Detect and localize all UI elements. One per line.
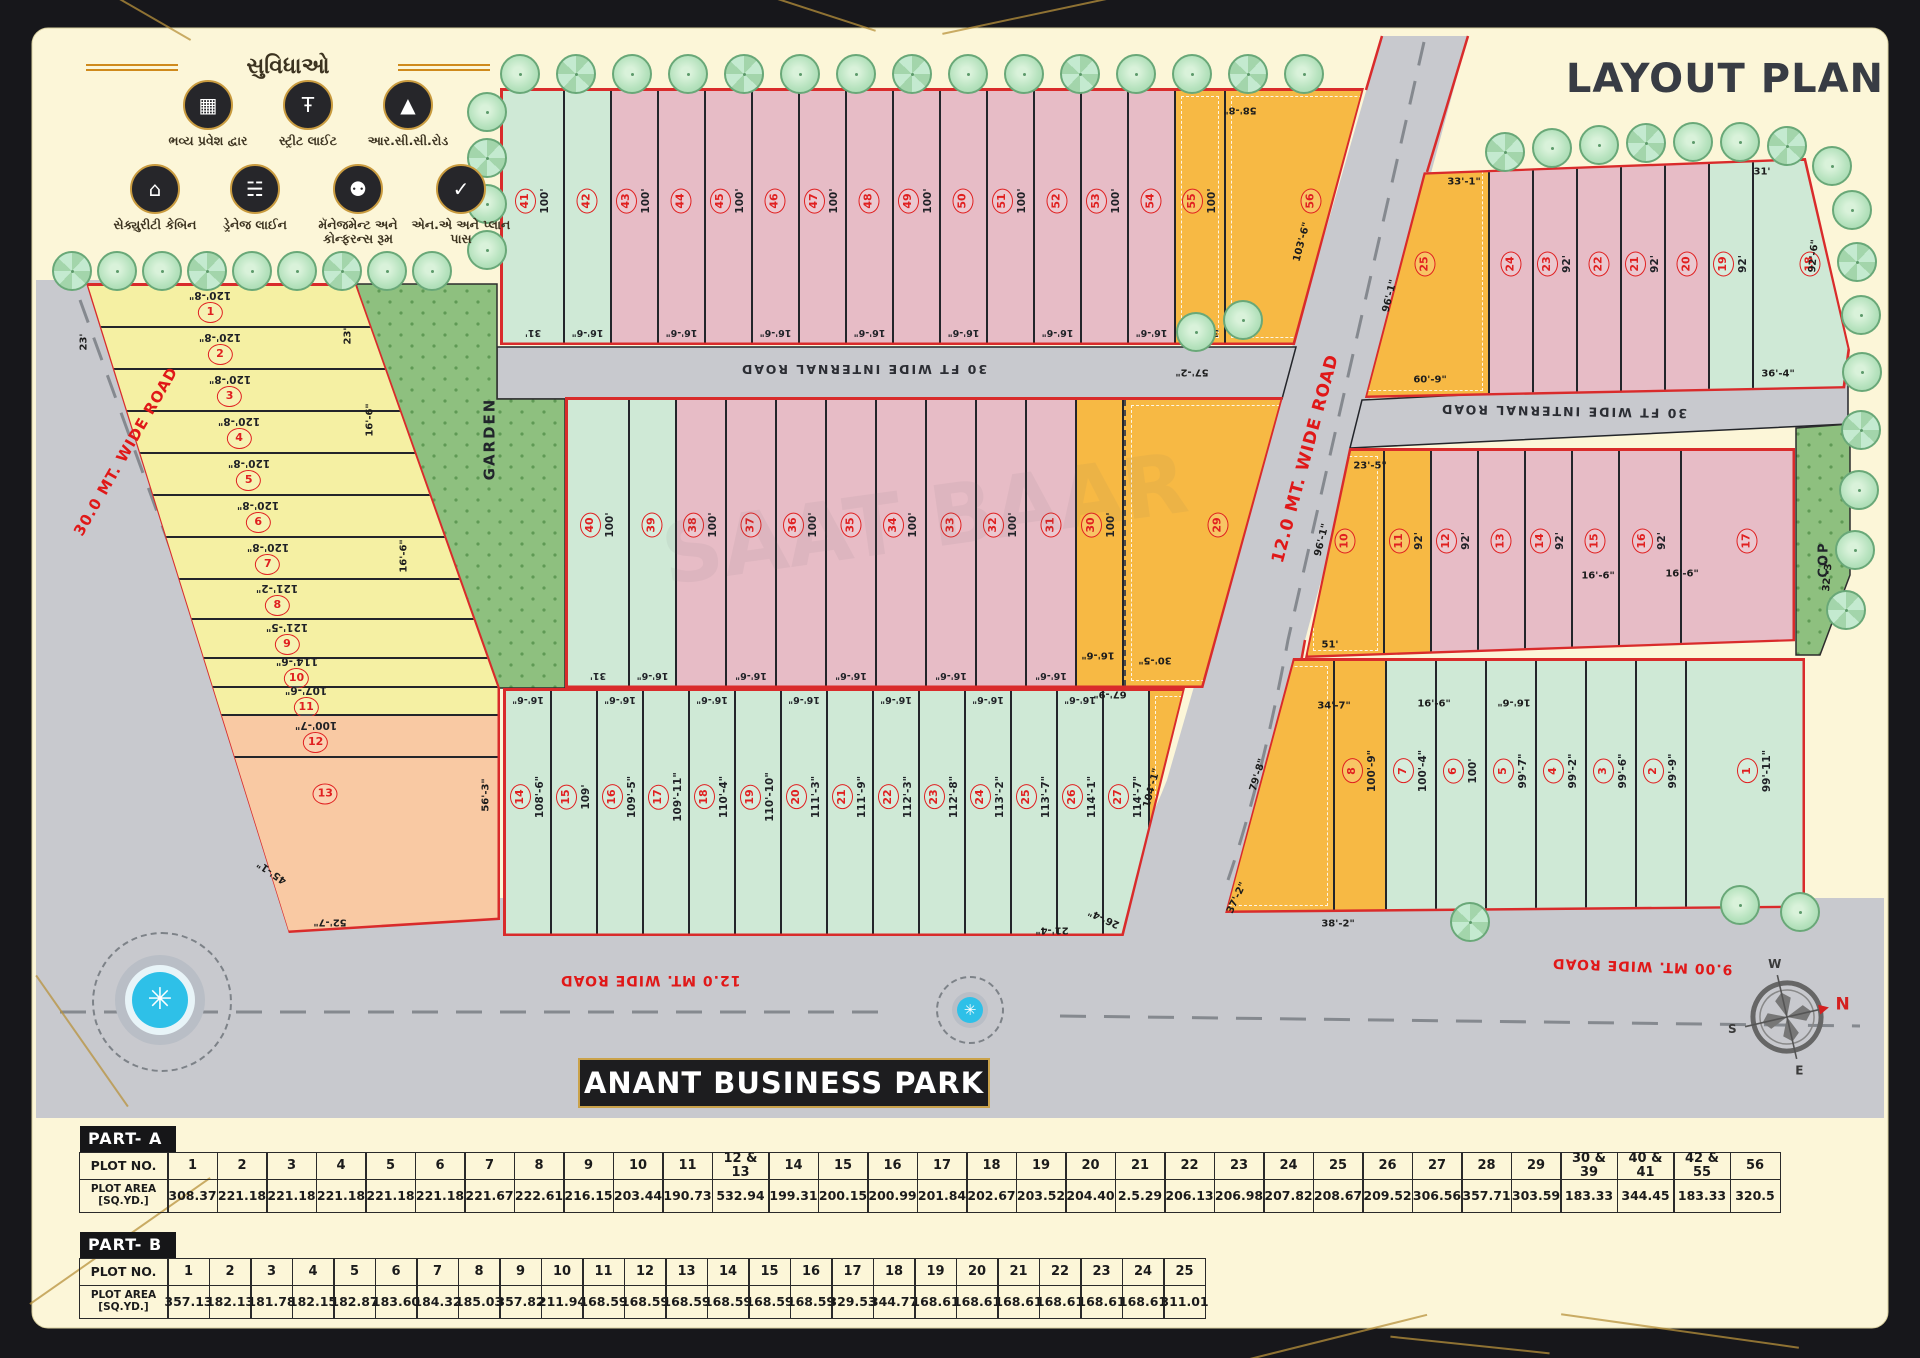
plot-number: 50 (953, 189, 974, 214)
plot-width-dim: 16'-6" (1035, 327, 1080, 338)
plot-top-51[interactable]: 51100' (988, 91, 1035, 343)
plot-top-48[interactable]: 4816'-6" (847, 91, 894, 343)
plot-top-45[interactable]: 45100' (706, 91, 753, 343)
plot-bmid-17[interactable]: 17109'-11" (644, 691, 690, 934)
compass-north: N (1835, 994, 1849, 1014)
plot-area-cell[interactable]: 199.31 (768, 1179, 819, 1213)
plot-number: 25 (1016, 785, 1037, 810)
plot-area-cell[interactable]: 168.59 (665, 1285, 708, 1319)
road-label-internal-top: 30 FT WIDE INTERNAL ROAD (740, 362, 987, 377)
plot-r1-21[interactable]: 2192' (1622, 161, 1666, 396)
plot-top-44[interactable]: 4416'-6" (659, 91, 706, 343)
plot-no-cell[interactable]: 9 (499, 1258, 542, 1286)
plot-no-cell[interactable]: 18 (873, 1258, 916, 1286)
plot-length-dim: 109' (580, 785, 592, 810)
plot-bmid-15[interactable]: 15109' (552, 691, 598, 934)
tree-icon (1485, 132, 1525, 172)
plot-no-cell[interactable]: 18 (966, 1152, 1017, 1180)
plot-no-cell[interactable]: 2 (209, 1258, 252, 1286)
plot-area-cell[interactable]: 185.03 (458, 1285, 501, 1319)
plot-number: 43 (616, 189, 637, 214)
plot-length-dim: 92' (1460, 532, 1472, 550)
plot-width-dim: 31' (503, 327, 563, 338)
plot-top-50[interactable]: 5016'-6" (941, 91, 988, 343)
plot-r2-12[interactable]: 1292' (1432, 451, 1479, 656)
plot-r1-20[interactable]: 20 (1666, 161, 1710, 396)
plot-length-dim: 108'-6" (534, 776, 546, 818)
plot-no-cell[interactable]: 6 (375, 1258, 418, 1286)
tree-icon (1284, 54, 1324, 94)
plot-no-cell[interactable]: 6 (415, 1152, 466, 1180)
plot-number: 23 (1537, 251, 1558, 276)
plot-number: 19 (740, 785, 761, 810)
plot-number: 21 (832, 785, 853, 810)
plot-area-cell[interactable]: 202.67 (966, 1179, 1017, 1213)
plot-bmid-25[interactable]: 25113'-7" (1012, 691, 1058, 934)
plot-no-cell[interactable]: 7 (416, 1258, 459, 1286)
plot-number: 38 (683, 513, 704, 538)
plot-no-cell[interactable]: 20 (956, 1258, 999, 1286)
plot-mid-30[interactable]: 30100' (1077, 400, 1124, 686)
plot-r1-22[interactable]: 22 (1578, 161, 1622, 396)
plot-no-cell[interactable]: 11 (582, 1258, 625, 1286)
plot-area-header: PLOT AREA[SQ.YD.] (79, 1285, 169, 1319)
plot-area-cell[interactable]: 209.52 (1362, 1179, 1413, 1213)
plot-number: 52 (1047, 189, 1068, 214)
plot-number: 3 (217, 386, 242, 407)
plot-number: 15 (556, 785, 577, 810)
plot-number: 16 (1632, 528, 1653, 553)
plot-area-cell[interactable]: 181.78 (250, 1285, 293, 1319)
plot-area-cell[interactable]: 221.18 (415, 1179, 466, 1213)
tree-icon (1673, 122, 1713, 162)
plot-number: 33 (940, 513, 961, 538)
tree-icon (1826, 590, 1866, 630)
plot-area-cell[interactable]: 207.82 (1263, 1179, 1314, 1213)
plot-no-cell[interactable]: 4 (292, 1258, 335, 1286)
plot-area-cell[interactable]: 222.61 (514, 1179, 565, 1213)
plot-r1-19[interactable]: 1992' (1710, 161, 1754, 396)
project-name: ANANT BUSINESS PARK (584, 1066, 984, 1100)
plot-length-dim: 100' (604, 513, 616, 538)
plot-area-cell[interactable]: 168.59 (707, 1285, 750, 1319)
plot-area-cell[interactable]: 221.18 (266, 1179, 317, 1213)
plot-area-cell[interactable]: 182.13 (209, 1285, 252, 1319)
plot-width-dim: 16'-6" (690, 694, 734, 705)
plot-r3-1[interactable]: 199'-11" (1687, 661, 1824, 911)
plot-no-cell[interactable]: 17 (831, 1258, 874, 1286)
tree-icon (1839, 470, 1879, 510)
plot-area-cell[interactable]: 168.59 (748, 1285, 791, 1319)
plot-area-cell[interactable]: 532.94 (712, 1179, 770, 1213)
plot-area-cell[interactable]: 168.61 (914, 1285, 957, 1319)
plot-no-cell[interactable]: 28 (1461, 1152, 1512, 1180)
plot-number: 16 (602, 785, 623, 810)
plot-number: 11 (1389, 528, 1410, 553)
plot-no-cell[interactable]: 30 & 39 (1560, 1152, 1618, 1180)
plot-number: 6 (246, 512, 271, 533)
plot-width-dim: 16'-6" (1058, 694, 1102, 705)
plot-width-dim: 16'-6" (1129, 327, 1174, 338)
plot-r3-6[interactable]: 6100' (1437, 661, 1487, 911)
plot-area-cell[interactable]: 344.77 (873, 1285, 916, 1319)
tree-icon (1720, 122, 1760, 162)
plot-area-cell[interactable]: 308.37 (167, 1179, 218, 1213)
legend-item-label: ડ્રેનેજ લાઈન (197, 218, 313, 232)
plot-area-cell[interactable]: 182.15 (292, 1285, 335, 1319)
plot-length-dim: 100' (807, 513, 819, 538)
plot-area-cell[interactable]: 206.98 (1214, 1179, 1265, 1213)
plot-area-cell[interactable]: 221.18 (365, 1179, 416, 1213)
street-light-icon: Ŧ (283, 80, 333, 130)
plot-no-cell[interactable]: 14 (707, 1258, 750, 1286)
plot-area-cell[interactable]: 190.73 (662, 1179, 713, 1213)
plot-area-cell[interactable]: 203.52 (1016, 1179, 1067, 1213)
plot-area-cell[interactable]: 204.40 (1065, 1179, 1116, 1213)
plot-number: 4 (1543, 758, 1564, 783)
plot-number: 51 (992, 189, 1013, 214)
plot-no-cell[interactable]: 23 (1080, 1258, 1123, 1286)
plot-bmid-23[interactable]: 23112'-8" (920, 691, 966, 934)
plot-number: 18 (694, 785, 715, 810)
plot-area-cell[interactable]: 2.5.29 (1115, 1179, 1166, 1213)
plot-number: 53 (1086, 189, 1107, 214)
conference-room-icon: ⚉ (333, 164, 383, 214)
plot-table-b: PART- BPLOT NO.1234567891011121314151617… (80, 1232, 1206, 1319)
plot-no-cell[interactable]: 15 (748, 1258, 791, 1286)
setback-line (1181, 96, 1219, 338)
plot-length-dim: 120'-8" (237, 499, 279, 511)
plot-no-cell[interactable]: 5 (333, 1258, 376, 1286)
plot-no-cell[interactable]: 1 (167, 1152, 218, 1180)
plot-width-dim: 16'-6" (941, 327, 986, 338)
plot-no-cell[interactable]: 3 (250, 1258, 293, 1286)
plot-length-dim: 112'-3" (902, 776, 914, 818)
plot-number: 6 (1443, 758, 1464, 783)
plot-area-cell[interactable]: 200.15 (818, 1179, 869, 1213)
plot-mid-35[interactable]: 3516'-6" (827, 400, 877, 686)
drainage-line-icon: ☵ (230, 164, 280, 214)
plot-no-cell[interactable]: 42 & 55 (1673, 1152, 1731, 1180)
tree-icon (1223, 300, 1263, 340)
plot-number: 42 (577, 189, 598, 214)
road-label-bottom-left: 12.0 MT. WIDE ROAD (560, 972, 740, 988)
plot-number: 7 (255, 554, 280, 575)
plot-number: 3 (1593, 758, 1614, 783)
plot-bmid-21[interactable]: 21111'-9" (828, 691, 874, 934)
plot-r3-2[interactable]: 299'-9" (1637, 661, 1687, 911)
plot-area-cell[interactable]: 200.99 (867, 1179, 918, 1213)
plot-area-cell[interactable]: 182.87 (333, 1285, 376, 1319)
plot-number: 24 (970, 785, 991, 810)
roundabout-ring: ✳ (952, 992, 988, 1028)
plot-area-cell[interactable]: 203.44 (613, 1179, 664, 1213)
amenities-legend: સુવિધાઓ ▦ભવ્ય પ્રવેશ દ્વારŦસ્ટ્રીટ લાઈટ▲… (58, 46, 518, 266)
plot-r1-23[interactable]: 2392' (1534, 161, 1578, 396)
plot-area-cell[interactable]: 168.59 (624, 1285, 667, 1319)
plot-number: 7 (1393, 758, 1414, 783)
plot-no-cell[interactable]: 19 (914, 1258, 957, 1286)
plot-no-cell[interactable]: 25 (1313, 1152, 1364, 1180)
legend-item-label: સેક્યુરીટી કેબિન (97, 218, 213, 232)
plot-top-54[interactable]: 5416'-6" (1129, 91, 1176, 343)
plot-length-dim: 99'-9" (1667, 753, 1679, 788)
plot-no-cell[interactable]: 10 (541, 1258, 584, 1286)
plot-area-cell[interactable]: 311.01 (1163, 1285, 1206, 1319)
plot-r2-16[interactable]: 1692' (1620, 451, 1682, 656)
plot-no-cell[interactable]: 27 (1412, 1152, 1463, 1180)
plot-mid-36[interactable]: 36100' (777, 400, 827, 686)
plot-bmid-19[interactable]: 19110'-10" (736, 691, 782, 934)
plot-number: 2 (1643, 758, 1664, 783)
plot-mid-32[interactable]: 32100' (977, 400, 1027, 686)
legend-item-label: ભવ્ય પ્રવેશ દ્વાર (150, 134, 266, 148)
plot-no-cell[interactable]: 12 & 13 (712, 1152, 770, 1180)
legend-item: ⌂સેક્યુરીટી કેબિન (97, 164, 213, 232)
plot-length-dim: 100' (1206, 189, 1218, 214)
plot-area-cell[interactable]: 306.56 (1412, 1179, 1463, 1213)
plot-width-dim: 16'-6" (966, 694, 1010, 705)
plot-no-cell[interactable]: 29 (1511, 1152, 1562, 1180)
plot-no-cell[interactable]: 2 (217, 1152, 268, 1180)
plot-no-cell[interactable]: 19 (1016, 1152, 1067, 1180)
plot-bmid-20[interactable]: 20111'-3"16'-6" (782, 691, 828, 934)
plot-area-cell[interactable]: 320.5 (1730, 1179, 1781, 1213)
plot-mid-31[interactable]: 3116'-6" (1027, 400, 1077, 686)
plot-top-47[interactable]: 47100' (800, 91, 847, 343)
plot-top-42[interactable]: 4216'-6" (565, 91, 612, 343)
plot-r2-15[interactable]: 15 (1573, 451, 1620, 656)
plot-r2-11[interactable]: 1192' (1385, 451, 1432, 656)
plot-no-cell[interactable]: 24 (1263, 1152, 1314, 1180)
plot-top-53[interactable]: 53100' (1082, 91, 1129, 343)
plot-area-cell[interactable]: 344.45 (1617, 1179, 1675, 1213)
plot-bmid-14[interactable]: 14108'-6"16'-6" (506, 691, 552, 934)
rcc-road-icon: ▲ (383, 80, 433, 130)
plot-no-cell[interactable]: 15 (818, 1152, 869, 1180)
plot-length-dim: 99'-11" (1761, 749, 1773, 791)
plot-width-dim: 16'-6" (827, 670, 875, 681)
plot-number: 26 (1062, 785, 1083, 810)
plot-area-cell[interactable]: 168.61 (1039, 1285, 1082, 1319)
plot-no-cell[interactable]: 26 (1362, 1152, 1413, 1180)
compass-east: E (1795, 1064, 1803, 1078)
plot-mid-37[interactable]: 3716'-6" (727, 400, 777, 686)
plan-pass-icon: ✓ (436, 164, 486, 214)
plot-number: 34 (883, 513, 904, 538)
roundabout-large: ✳ (92, 932, 232, 1072)
plot-mid-34[interactable]: 34100' (877, 400, 927, 686)
plot-mid-40[interactable]: 40100'31' (568, 400, 630, 686)
legend-item: ▲આર.સી.સી.રોડ (350, 80, 466, 148)
tree-icon (1176, 312, 1216, 352)
plot-width-dim: 16'-6" (927, 670, 975, 681)
cop-label: COP (1817, 541, 1832, 577)
plot-length-dim: 92' (1413, 532, 1425, 550)
fountain-icon: ✳ (957, 997, 983, 1023)
plot-number: 10 (1335, 528, 1356, 553)
table-part-label: PART- A (80, 1126, 176, 1152)
legend-item-label: સ્ટ્રીટ લાઈટ (250, 134, 366, 148)
legend-item: ▦ભવ્ય પ્રવેશ દ્વાર (150, 80, 266, 148)
plot-number: 24 (1500, 251, 1521, 276)
plot-area-cell[interactable]: 168.61 (1080, 1285, 1123, 1319)
plot-number: 13 (313, 783, 338, 804)
plot-area-cell[interactable]: 357.71 (1461, 1179, 1512, 1213)
plot-area-cell[interactable]: 183.33 (1560, 1179, 1618, 1213)
plot-area-cell[interactable]: 168.61 (997, 1285, 1040, 1319)
plot-no-cell[interactable]: 3 (266, 1152, 317, 1180)
plot-no-cell[interactable]: 14 (768, 1152, 819, 1180)
plot-r3-8[interactable]: 8100'-9" (1335, 661, 1387, 911)
plot-no-cell[interactable]: 10 (613, 1152, 664, 1180)
plot-no-cell[interactable]: 40 & 41 (1617, 1152, 1675, 1180)
plot-r2-17[interactable]: 17 (1682, 451, 1812, 656)
plot-no-cell[interactable]: 22 (1164, 1152, 1215, 1180)
legend-item-label: મૅનેજમેન્ટ અને કોન્ફરન્સ રૂમ (300, 218, 416, 247)
plot-length-dim: 110'-4" (718, 776, 730, 818)
plot-area-cell[interactable]: 208.67 (1313, 1179, 1364, 1213)
tree-icon (1720, 885, 1760, 925)
plot-number: 10 (284, 668, 309, 689)
plot-length-dim: 109'-11" (672, 773, 684, 823)
plot-block-mid: 40100'31'3916'-6"38100'3716'-6"36100'351… (565, 397, 1283, 688)
plot-length-dim: 100' (734, 189, 746, 214)
plot-no-cell[interactable]: 17 (917, 1152, 968, 1180)
plot-area-cell[interactable]: 221.18 (316, 1179, 367, 1213)
plot-r2-13[interactable]: 13 (1479, 451, 1526, 656)
project-name-box: ANANT BUSINESS PARK (578, 1058, 990, 1108)
plot-width-dim: 16'-6" (565, 327, 610, 338)
plot-area-cell[interactable]: 168.61 (1122, 1285, 1165, 1319)
plot-area-cell[interactable]: 211.94 (541, 1285, 584, 1319)
plot-number: 5 (236, 470, 261, 491)
plot-length-dim: 100' (907, 513, 919, 538)
plot-no-cell[interactable]: 56 (1730, 1152, 1781, 1180)
plot-top-43[interactable]: 43100' (612, 91, 659, 343)
plot-no-cell[interactable]: 7 (464, 1152, 515, 1180)
plot-no-cell[interactable]: 16 (790, 1258, 833, 1286)
plot-bmid-18[interactable]: 18110'-4"16'-6" (690, 691, 736, 934)
plot-no-cell[interactable]: 1 (167, 1258, 210, 1286)
plot-no-cell[interactable]: 9 (563, 1152, 614, 1180)
plot-block-r2: 101192'1292'131492'151692'17 (1305, 448, 1795, 658)
plot-area-cell[interactable]: 303.59 (1511, 1179, 1562, 1213)
plot-no-cell[interactable]: 4 (316, 1152, 367, 1180)
plot-area-cell[interactable]: 183.33 (1673, 1179, 1731, 1213)
plot-number: 12 (1436, 528, 1457, 553)
plot-area-cell[interactable]: 216.15 (563, 1179, 614, 1213)
plot-length-dim: 100' (707, 513, 719, 538)
plot-top-46[interactable]: 4616'-6" (753, 91, 800, 343)
plot-number: 49 (898, 189, 919, 214)
plot-area-cell[interactable]: 168.59 (582, 1285, 625, 1319)
plot-no-header: PLOT NO. (79, 1152, 169, 1180)
plot-no-cell[interactable]: 21 (1115, 1152, 1166, 1180)
plot-no-cell[interactable]: 11 (662, 1152, 713, 1180)
plot-area-cell[interactable]: 357.82 (499, 1285, 542, 1319)
plot-top-49[interactable]: 49100' (894, 91, 941, 343)
plot-r2-14[interactable]: 1492' (1526, 451, 1573, 656)
plot-length-dim: 121'-5" (266, 621, 308, 633)
plot-r3-3[interactable]: 399'-6" (1587, 661, 1637, 911)
tree-icon (1835, 530, 1875, 570)
plot-area-cell[interactable]: 184.32 (416, 1285, 459, 1319)
plot-no-cell[interactable]: 24 (1122, 1258, 1165, 1286)
plot-area-cell[interactable]: 221.67 (464, 1179, 515, 1213)
plot-area-cell[interactable]: 168.61 (956, 1285, 999, 1319)
plot-no-cell[interactable]: 13 (665, 1258, 708, 1286)
plot-area-cell[interactable]: 183.60 (375, 1285, 418, 1319)
plot-number: 1 (198, 302, 223, 323)
plot-bmid-24[interactable]: 24113'-2"16'-6" (966, 691, 1012, 934)
plot-no-cell[interactable]: 20 (1065, 1152, 1116, 1180)
tree-icon (1812, 146, 1852, 186)
page-title: LAYOUT PLAN (1566, 56, 1884, 102)
plot-area-cell[interactable]: 206.13 (1164, 1179, 1215, 1213)
plot-no-cell[interactable]: 23 (1214, 1152, 1265, 1180)
legend-item-label: એન.એ અને પ્લાન પાસ (403, 218, 519, 247)
plot-number: 20 (786, 785, 807, 810)
plot-no-cell[interactable]: 8 (458, 1258, 501, 1286)
plot-length-dim: 113'-2" (994, 776, 1006, 818)
plot-no-cell[interactable]: 25 (1163, 1258, 1206, 1286)
plot-mid-33[interactable]: 3316'-6" (927, 400, 977, 686)
plot-length-dim: 120'-8" (199, 331, 241, 343)
plot-area-cell[interactable]: 168.59 (790, 1285, 833, 1319)
plot-length-dim: 111'-3" (810, 776, 822, 818)
plot-number: 48 (859, 189, 880, 214)
plot-r3-7[interactable]: 7100'-4" (1387, 661, 1437, 911)
plot-bmid-16[interactable]: 16109'-5"16'-6" (598, 691, 644, 934)
plot-r3-4[interactable]: 499'-2" (1537, 661, 1587, 911)
plot-no-cell[interactable]: 8 (514, 1152, 565, 1180)
plot-area-cell[interactable]: 221.18 (217, 1179, 268, 1213)
plot-number: 17 (1736, 528, 1757, 553)
plot-mid-38[interactable]: 38100' (677, 400, 727, 686)
plot-no-cell[interactable]: 5 (365, 1152, 416, 1180)
tree-icon (724, 54, 764, 94)
plot-length-dim: 100' (539, 189, 551, 214)
plot-width-dim: 16'-6" (847, 327, 892, 338)
plot-r3-5[interactable]: 599'-7" (1487, 661, 1537, 911)
plot-r1-24[interactable]: 24 (1490, 161, 1534, 396)
plot-length-dim: 121'-2" (256, 582, 298, 594)
plot-top-55[interactable]: 55100'31'-11" (1176, 91, 1226, 343)
plot-area-cell[interactable]: 357.13 (167, 1285, 210, 1319)
plot-mid-39[interactable]: 3916'-6" (630, 400, 677, 686)
plot-top-52[interactable]: 5216'-6" (1035, 91, 1082, 343)
plot-bmid-26[interactable]: 26114'-1"16'-6" (1058, 691, 1104, 934)
plot-no-cell[interactable]: 12 (624, 1258, 667, 1286)
plot-bmid-22[interactable]: 22112'-3"16'-6" (874, 691, 920, 934)
plot-width-dim: 16'-6" (506, 694, 550, 705)
plot-number: 4 (227, 428, 252, 449)
plot-no-cell[interactable]: 16 (867, 1152, 918, 1180)
plot-no-cell[interactable]: 21 (997, 1258, 1040, 1286)
plot-number: 20 (1676, 251, 1697, 276)
plot-block-r1: 25242392'222192'201992'18 (1360, 158, 1850, 398)
plot-number: 44 (671, 189, 692, 214)
plot-no-cell[interactable]: 22 (1039, 1258, 1082, 1286)
plot-no-header: PLOT NO. (79, 1258, 169, 1286)
plot-area-cell[interactable]: 329.53 (831, 1285, 874, 1319)
tree-icon (1767, 126, 1807, 166)
entrance-gate-icon: ▦ (183, 80, 233, 130)
tree-icon (1060, 54, 1100, 94)
plot-area-cell[interactable]: 201.84 (917, 1179, 968, 1213)
tree-icon (836, 54, 876, 94)
